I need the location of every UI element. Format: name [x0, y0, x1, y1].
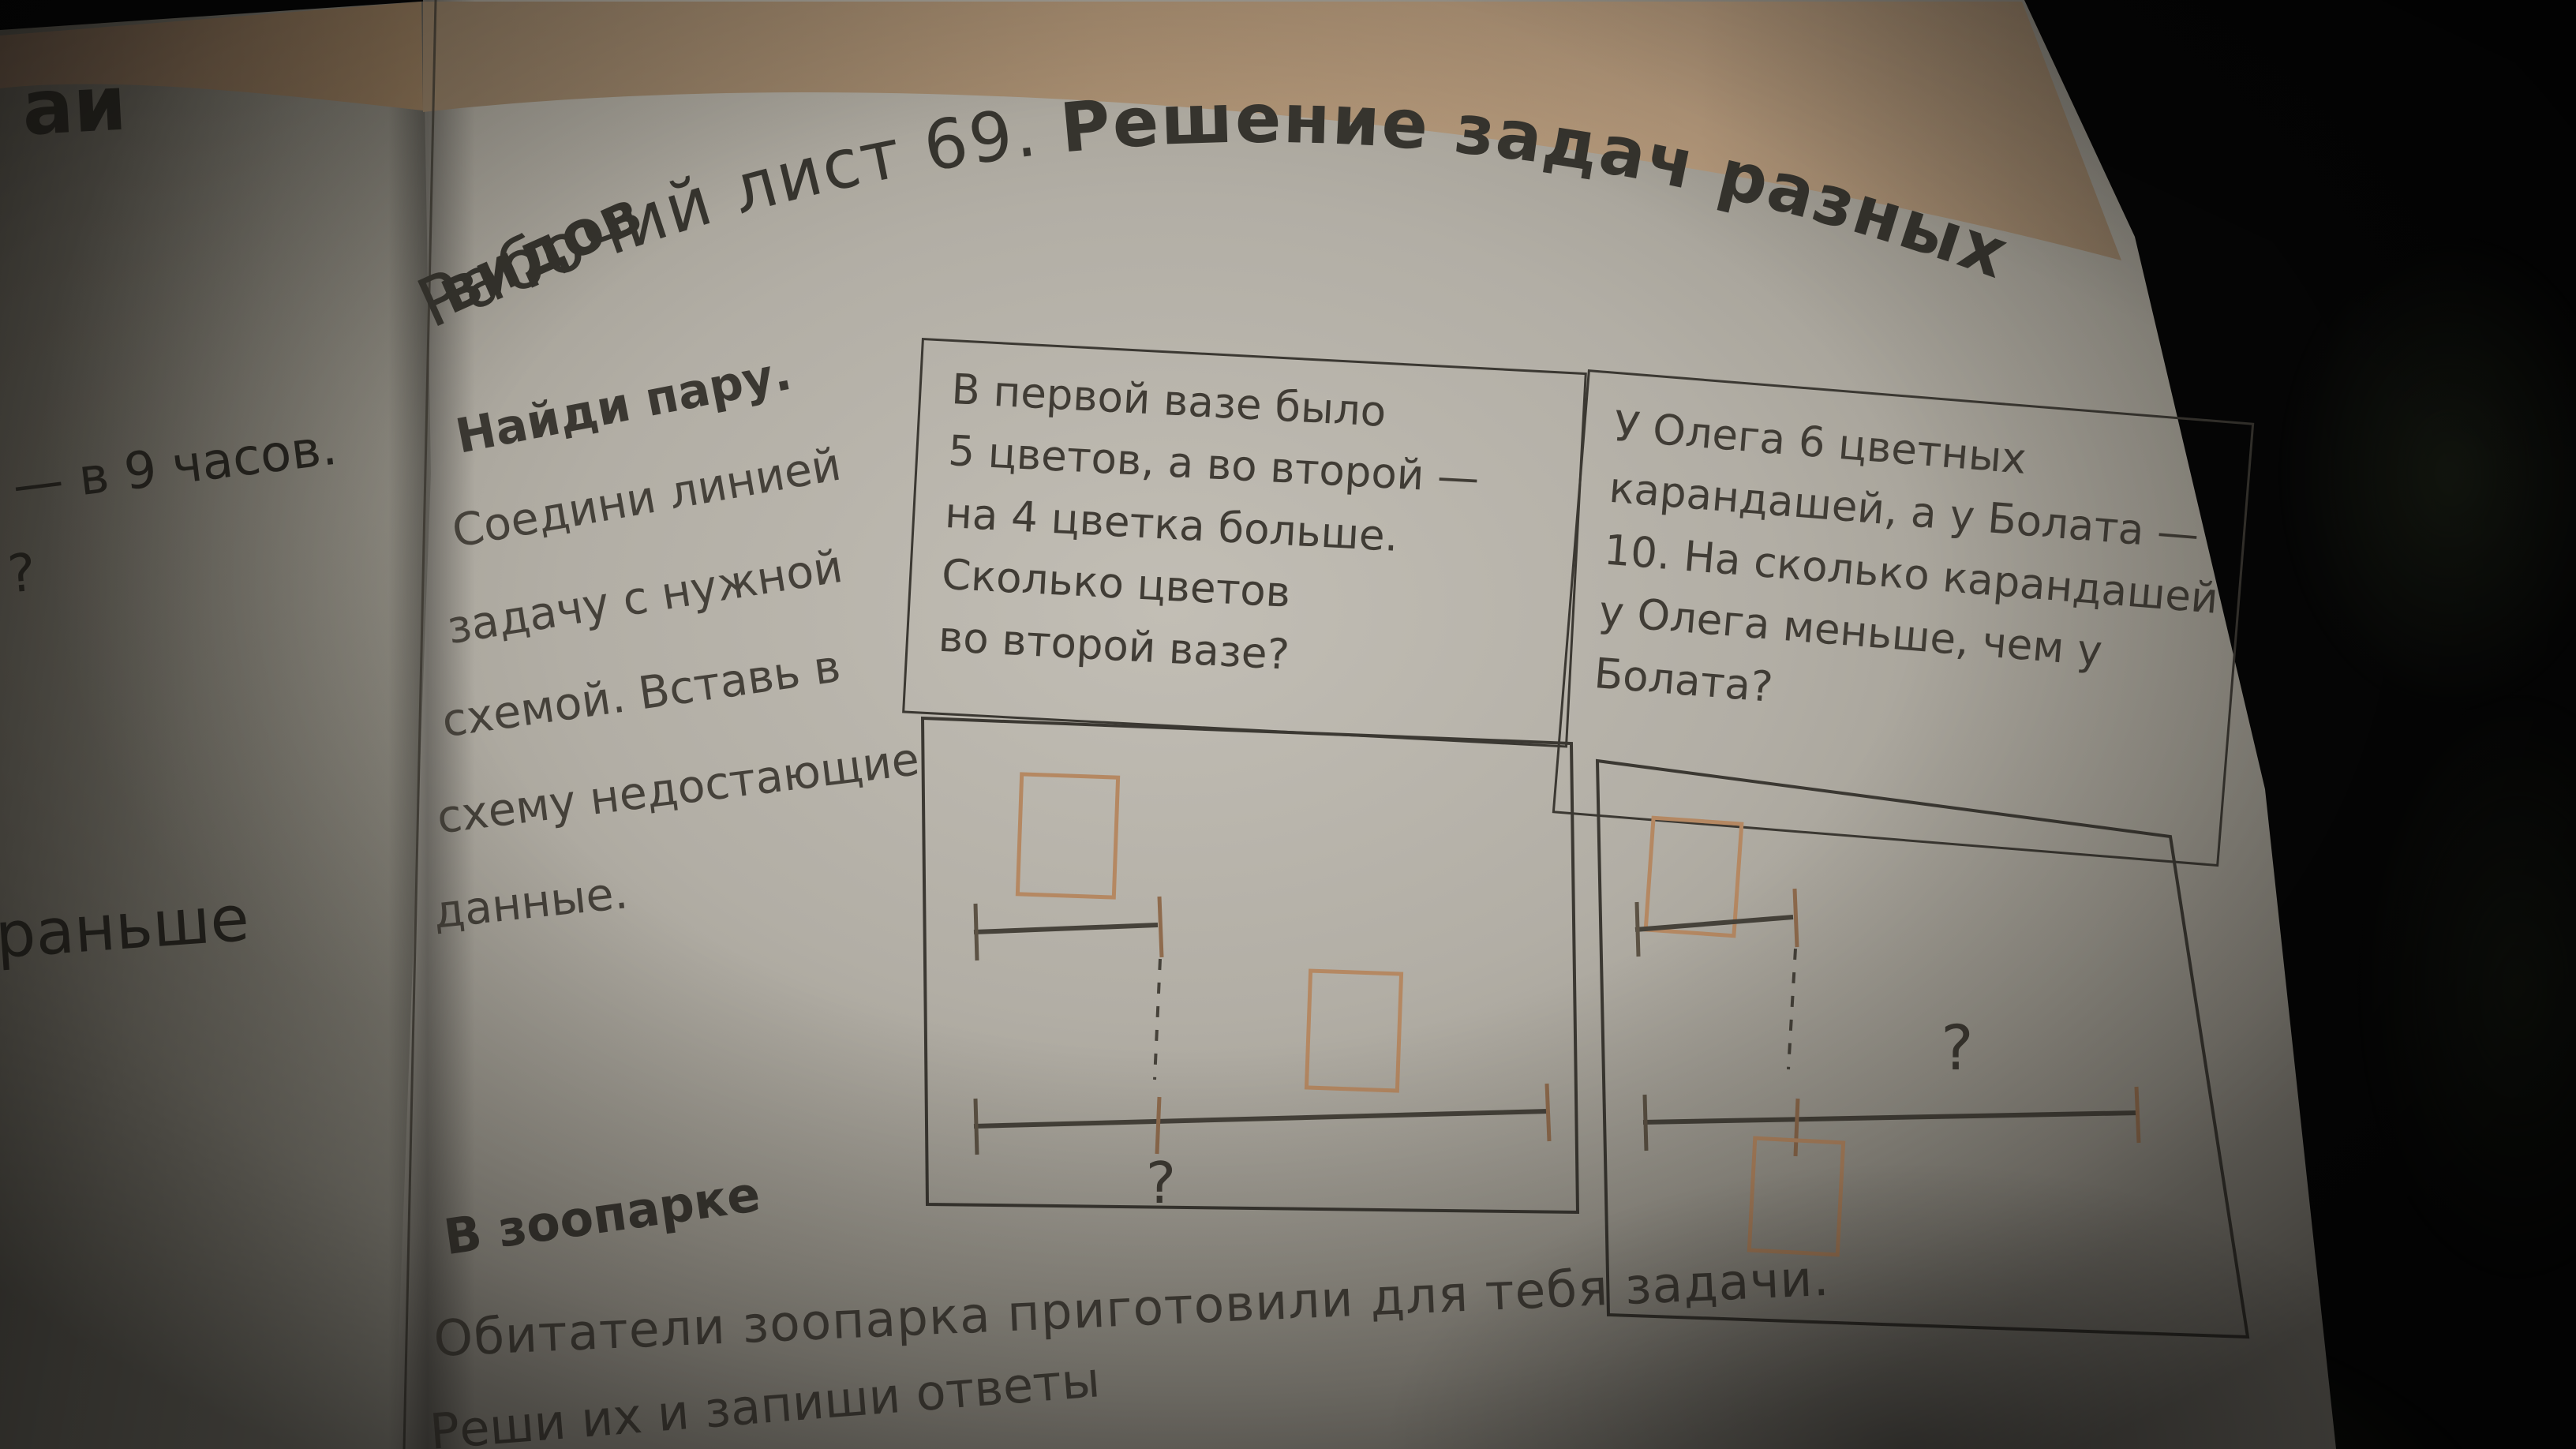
segment-tick — [1795, 889, 1797, 947]
value-box-icon — [1306, 971, 1401, 1091]
lower-segment — [1643, 1113, 2139, 1122]
segment-tick — [2136, 1087, 2139, 1143]
value-box-icon — [1017, 774, 1118, 897]
upper-segment — [974, 925, 1158, 932]
schema-diagram-1: ? — [912, 702, 1582, 1223]
segment-tick — [1795, 1099, 1798, 1156]
page-edge-line — [404, 0, 436, 1449]
segment-tick — [1547, 1084, 1549, 1141]
task1-text-box: В первой вазе было 5 цветов, а во второй… — [902, 338, 1587, 748]
segment-tick — [1637, 902, 1638, 957]
left-page-top-band — [0, 2, 423, 110]
value-box-icon — [1646, 818, 1742, 935]
question-mark: ? — [1146, 1150, 1176, 1216]
dashed-connector — [1155, 959, 1160, 1080]
segment-tick — [975, 1099, 977, 1155]
upper-segment — [1635, 917, 1793, 930]
diagram-border — [1597, 761, 2248, 1337]
photo-frame: ай — в 9 часов. ? раньше Рабочий л — [0, 0, 2576, 1449]
lower-segment — [974, 1111, 1548, 1126]
segment-tick — [975, 904, 977, 960]
segment-tick — [1645, 1095, 1646, 1151]
dashed-connector — [1788, 949, 1795, 1069]
question-mark: ? — [1941, 1013, 1973, 1084]
segment-tick — [1159, 897, 1162, 957]
segment-tick — [1157, 1097, 1159, 1154]
